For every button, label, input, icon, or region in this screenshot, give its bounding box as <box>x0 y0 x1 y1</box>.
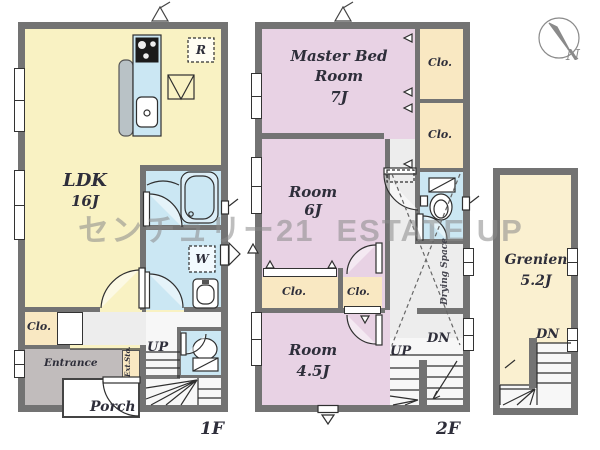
room-toilet-2f <box>420 172 463 239</box>
room-name: LDK <box>50 170 120 192</box>
closet-2f-mid-right-door <box>344 306 381 314</box>
closet-label: Clo. <box>282 285 306 298</box>
window <box>251 157 262 214</box>
window <box>14 68 25 132</box>
room-name: Grenien <box>496 250 576 271</box>
stairs-down-label-loft: DN <box>536 327 559 343</box>
room-size: 5.2J <box>496 271 576 292</box>
wall <box>184 307 221 312</box>
vent-icon <box>152 2 170 21</box>
wall <box>338 268 343 308</box>
room-name: Master Bed Room <box>283 46 395 87</box>
window <box>14 350 25 378</box>
wall <box>140 165 221 171</box>
vent-icon <box>335 2 353 21</box>
room-size: 6J <box>283 201 343 219</box>
loft-stair-bottom <box>500 385 537 408</box>
room-size: 16J <box>50 192 120 210</box>
washer-label: W <box>189 246 215 272</box>
window <box>251 312 262 366</box>
wall <box>140 345 146 405</box>
wall <box>262 133 384 139</box>
closet-label: Clo. <box>27 320 51 333</box>
stairs-up-label-1f: UP <box>147 340 168 356</box>
window <box>463 318 474 351</box>
closet-label: Clo. <box>428 56 452 69</box>
window <box>463 248 474 276</box>
wall <box>177 327 181 378</box>
wall <box>415 239 463 244</box>
room-name: Room <box>283 183 343 201</box>
wall <box>146 225 221 230</box>
loft-stair-right <box>537 343 571 408</box>
wall <box>385 139 390 310</box>
wall <box>529 338 537 388</box>
closet-label: Clo. <box>428 128 452 141</box>
stairs-up-label-2f: UP <box>390 344 411 360</box>
hallway-1f <box>83 312 146 345</box>
room-toilet-1f <box>181 331 221 375</box>
wall <box>140 165 146 310</box>
wall <box>177 327 221 331</box>
grenier-label: Grenien 5.2J <box>496 250 576 292</box>
window <box>251 73 262 119</box>
porch-label: Porch <box>90 399 136 416</box>
window <box>14 170 25 240</box>
drying-space-label: Drying Space <box>440 243 451 305</box>
room-name: Room <box>275 340 351 361</box>
room-size: 4.5J <box>275 361 351 382</box>
wall <box>415 168 463 172</box>
wall <box>181 375 221 378</box>
fridge-label: R <box>188 38 214 62</box>
master-bedroom-label: Master Bed Room 7J <box>283 46 395 107</box>
closet-2f-mid-left-door <box>263 268 337 277</box>
wall <box>142 307 146 312</box>
ext-storage-label: Ext.Sto. <box>124 352 132 377</box>
stairs-down-label-2f: DN <box>427 331 450 347</box>
room-size: 7J <box>283 87 395 107</box>
wall <box>416 133 420 139</box>
compass-north-label: N <box>566 46 580 64</box>
floor1-label: 1F <box>200 419 224 439</box>
entrance-label: Entrance <box>44 357 98 370</box>
wall <box>417 308 463 314</box>
ldk-label: LDK 16J <box>50 170 120 210</box>
window <box>567 328 578 352</box>
floor2-label: 2F <box>436 419 460 439</box>
wall <box>420 99 463 103</box>
wall <box>25 345 70 349</box>
closet-label: Clo. <box>347 286 370 299</box>
room-bathroom <box>146 171 221 225</box>
room45-label: Room 4.5J <box>275 340 351 382</box>
room6-label: Room 6J <box>283 183 343 219</box>
closet-1f-sliding-door <box>57 312 83 345</box>
floor-plan: LDK 16J Master Bed Room 7J Room 6J Room … <box>0 0 600 450</box>
